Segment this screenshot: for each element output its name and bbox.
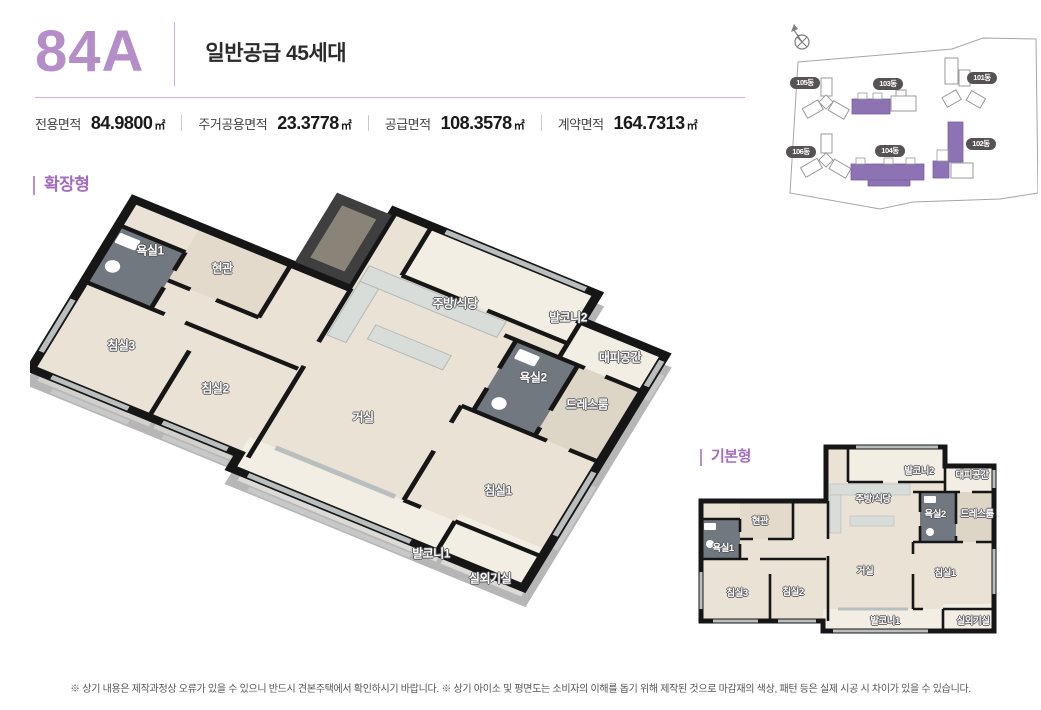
unit-code: 84A xyxy=(35,16,144,88)
area-item-exclusive: 전용면적 84.9800 ㎡ xyxy=(35,113,165,134)
site-map: 105동103동101동106동104동102동 xyxy=(788,20,1038,215)
building-103-annex xyxy=(891,96,916,111)
area-label: 계약면적 xyxy=(558,114,604,133)
area-value: 108.3578 xyxy=(441,113,512,134)
site-map-drawing xyxy=(788,20,1038,215)
building-104 xyxy=(851,164,924,180)
header-divider xyxy=(174,22,175,86)
compass-icon xyxy=(791,24,809,49)
basic-floorplan: 욕실1현관침실3침실2거실주방/식당발코니2대피공간욕실2드레스룸침실1발코니1… xyxy=(695,442,1001,638)
area-spec-row: 전용면적 84.9800 ㎡ 주거공용면적 23.3778 ㎡ 공급면적 108… xyxy=(35,111,698,135)
area-label: 전용면적 xyxy=(35,114,81,133)
extended-floorplan-drawing xyxy=(30,188,675,658)
basic-floorplan-drawing xyxy=(695,442,1001,638)
area-value: 23.3778 xyxy=(277,113,339,134)
area-item-common: 주거공용면적 23.3778 ㎡ xyxy=(198,113,351,134)
area-label: 주거공용면적 xyxy=(198,114,267,133)
building-104-jog xyxy=(868,180,910,186)
area-value: 164.7313 xyxy=(614,113,685,134)
area-unit: ㎡ xyxy=(514,117,525,133)
area-unit: ㎡ xyxy=(341,117,352,133)
building-102-wing xyxy=(933,161,949,178)
area-label: 공급면적 xyxy=(385,114,431,133)
area-item-contract: 계약면적 164.7313 ㎡ xyxy=(558,113,698,134)
area-value: 84.9800 xyxy=(91,113,153,134)
header-rule xyxy=(35,97,745,98)
building-103-roof xyxy=(896,90,906,96)
building-102-annex xyxy=(951,163,973,178)
area-unit: ㎡ xyxy=(687,117,698,133)
area-separator xyxy=(368,115,369,131)
header: 84A 일반공급 45세대 xyxy=(35,16,346,88)
supply-type: 일반공급 45세대 xyxy=(205,37,346,67)
building-103 xyxy=(852,99,890,114)
site-boundary xyxy=(790,38,1038,209)
area-separator xyxy=(541,115,542,131)
area-unit: ㎡ xyxy=(154,117,165,133)
building-102 xyxy=(948,122,963,162)
area-item-supply: 공급면적 108.3578 ㎡ xyxy=(385,113,525,134)
page: 84A 일반공급 45세대 전용면적 84.9800 ㎡ 주거공용면적 23.3… xyxy=(0,0,1041,710)
extended-floorplan: 욕실1현관침실3침실2거실주방/식당발코니2대피공간욕실2드레스룸침실1발코니1… xyxy=(30,188,675,658)
area-separator xyxy=(181,115,182,131)
disclaimer-text: ※ 상기 내용은 제작과정상 오류가 있을 수 있으니 반드시 견본주택에서 확… xyxy=(0,680,1041,695)
